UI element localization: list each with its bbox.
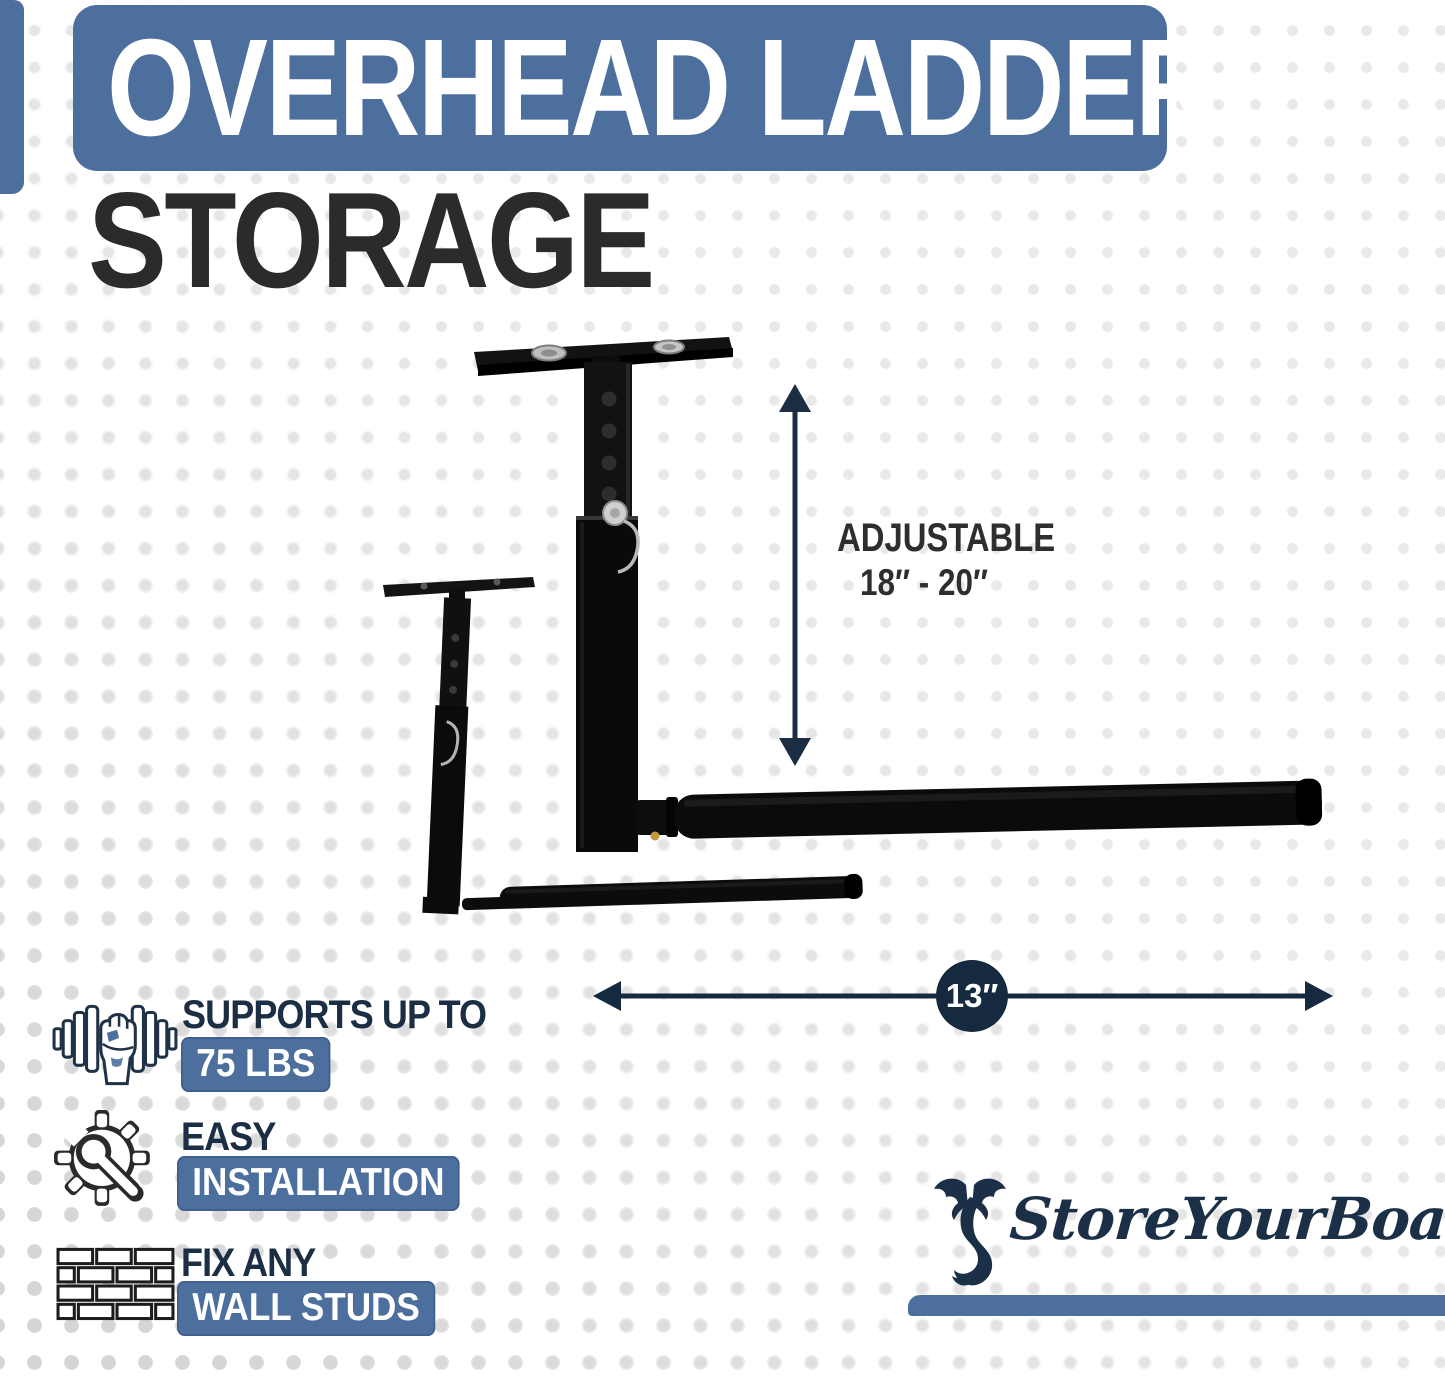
width-dimension-badge: 13″ xyxy=(936,960,1008,1032)
feature-installation-badge: INSTALLATION xyxy=(177,1156,460,1211)
page-title: OVERHEAD LADDER xyxy=(107,19,1214,157)
title-banner: OVERHEAD LADDER xyxy=(73,5,1167,171)
dumbbell-hand-icon xyxy=(50,998,180,1092)
seahorse-dragon-icon xyxy=(928,1172,1012,1292)
feature-easy-heading: EASY xyxy=(181,1117,275,1157)
gear-wrench-icon xyxy=(54,1110,154,1210)
adjustable-dimension-label: ADJUSTABLE 18″ - 20″ xyxy=(818,518,1030,601)
feature-supports-heading: SUPPORTS UP TO xyxy=(182,995,486,1035)
width-dimension-text: 13″ xyxy=(946,977,999,1015)
brand-name: StoreYourBoard xyxy=(1008,1190,1445,1248)
left-edge-accent-tab xyxy=(0,0,24,194)
brick-wall-icon xyxy=(56,1247,176,1325)
product-infographic: OVERHEAD LADDER STORAGE xyxy=(0,0,1445,1383)
brand-accent-bar xyxy=(908,1295,1445,1316)
adjustable-text: ADJUSTABLE xyxy=(837,518,1011,558)
feature-supports-badge: 75 LBS xyxy=(181,1037,331,1092)
feature-wallstuds-badge: WALL STUDS xyxy=(177,1281,435,1336)
page-subtitle: STORAGE xyxy=(88,172,653,308)
adjustable-range-text: 18″ - 20″ xyxy=(834,564,1014,601)
feature-fix-heading: FIX ANY xyxy=(181,1243,315,1283)
